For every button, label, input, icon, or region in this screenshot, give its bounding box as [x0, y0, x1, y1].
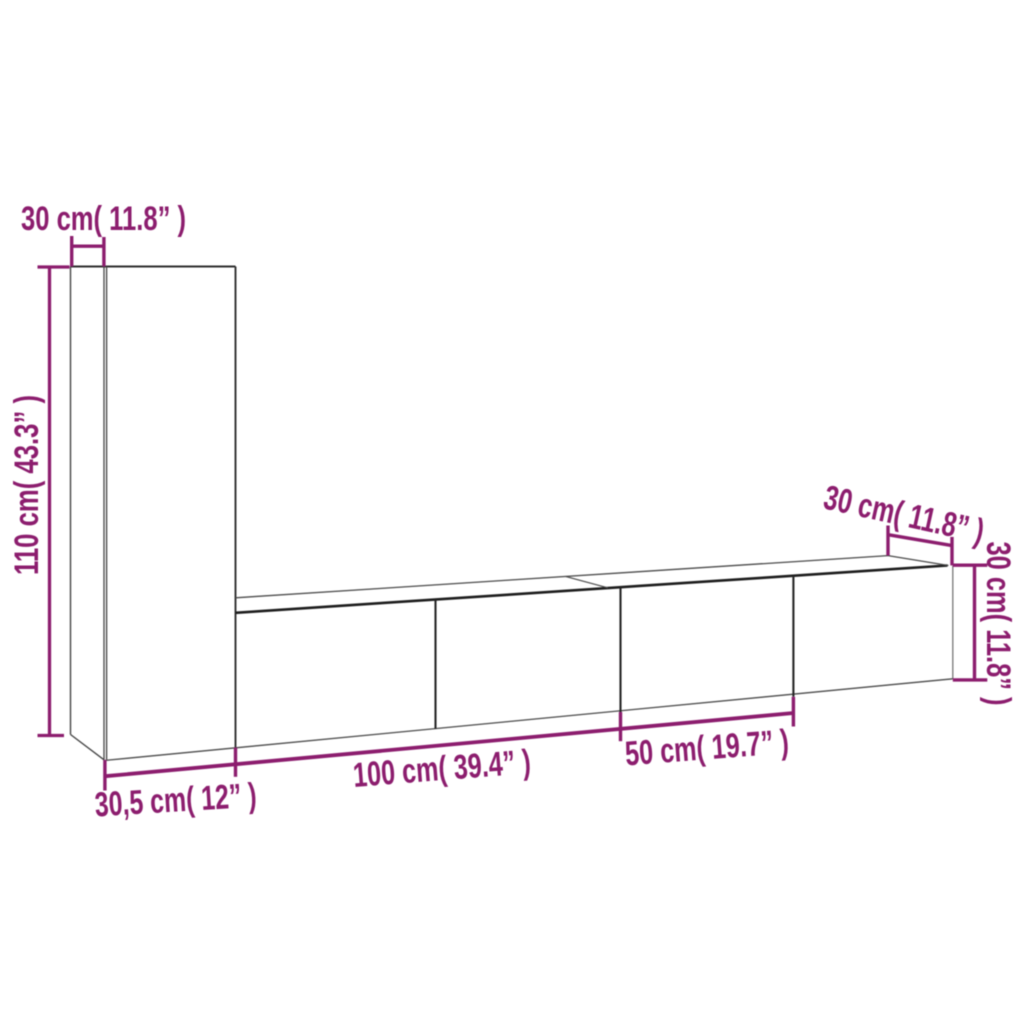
svg-text:110 cm( 43.3” ): 110 cm( 43.3” ) — [8, 395, 46, 575]
svg-text:30 cm( 11.8” ): 30 cm( 11.8” ) — [979, 542, 1017, 706]
svg-text:30 cm( 11.8” ): 30 cm( 11.8” ) — [21, 200, 186, 238]
